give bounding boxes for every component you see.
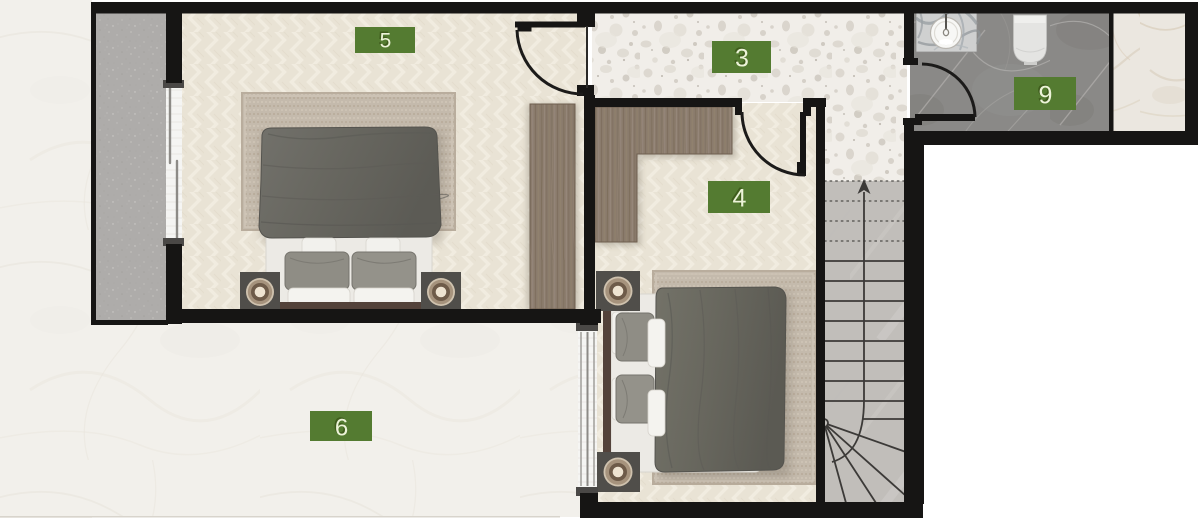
svg-text:5: 5 [380, 30, 392, 53]
svg-text:4: 4 [733, 185, 747, 213]
svg-text:6: 6 [335, 415, 348, 442]
svg-text:9: 9 [1039, 82, 1053, 110]
svg-text:3: 3 [735, 45, 749, 73]
